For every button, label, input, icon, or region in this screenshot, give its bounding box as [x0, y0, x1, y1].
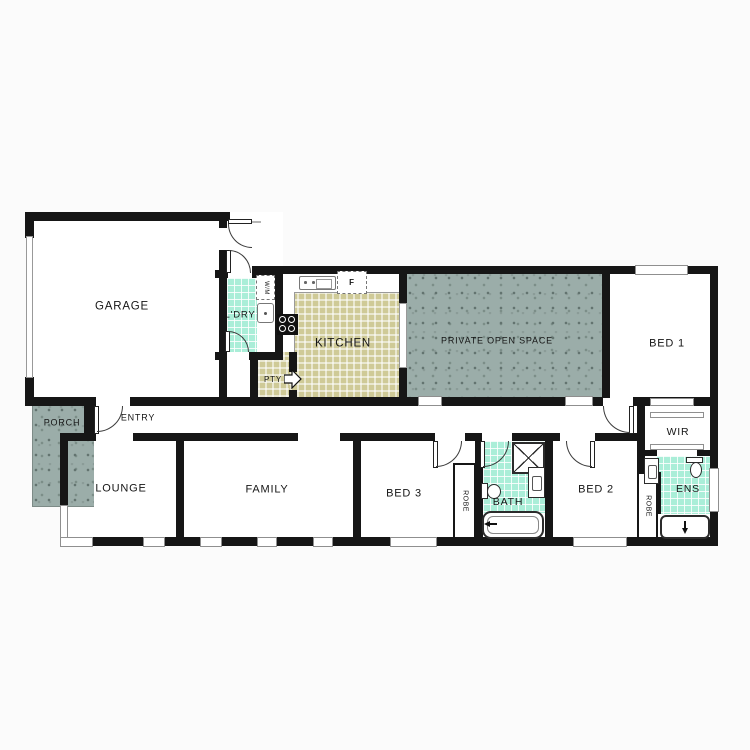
- wall: [442, 397, 565, 406]
- window: [257, 537, 277, 547]
- wall: [133, 433, 298, 441]
- wall: [275, 266, 283, 360]
- wall: [25, 397, 96, 406]
- pantry-label: PTY: [264, 376, 282, 384]
- bed3-robe-label: ROBE: [462, 490, 469, 512]
- vanity-basin: [528, 467, 545, 498]
- wardrobe-rail: [650, 444, 704, 450]
- wall: [68, 433, 96, 441]
- window: [313, 537, 333, 547]
- fridge-label: F: [349, 279, 355, 287]
- window: [143, 537, 165, 547]
- bed3-label: BED 3: [386, 489, 422, 500]
- wall: [545, 441, 553, 546]
- wall: [512, 433, 560, 441]
- wall: [645, 450, 657, 456]
- lounge-label: LOUNGE: [95, 484, 146, 495]
- wall: [289, 390, 297, 406]
- ens-label: ENS: [676, 484, 700, 495]
- laundry-tub: [257, 303, 274, 323]
- window: [390, 537, 437, 547]
- window: [573, 537, 627, 547]
- wall: [465, 433, 482, 441]
- window: [60, 505, 68, 538]
- glass-sliding-door: [399, 303, 407, 368]
- washing-machine-label: W/M: [263, 281, 269, 295]
- cooktop: [277, 314, 298, 335]
- window: [418, 396, 442, 406]
- wall: [25, 377, 34, 406]
- kitchen-sink: [299, 276, 336, 290]
- floor-plan: F W/M GARAGE PORCH ENTRY L'DRY PTY KITCH…: [0, 0, 750, 750]
- private-open-space-label: PRIVATE OPEN SPACE: [441, 337, 553, 346]
- wall: [219, 212, 227, 228]
- bathtub: [482, 511, 544, 539]
- wall: [252, 266, 635, 274]
- wall: [602, 274, 610, 398]
- wall: [25, 212, 34, 238]
- wir-label: WIR: [667, 427, 690, 438]
- toilet-bowl: [690, 462, 702, 478]
- wall: [176, 433, 184, 546]
- shower-head-arrow-icon: [682, 528, 688, 534]
- bath-mixer-arrow-icon: [484, 521, 490, 527]
- wall: [353, 433, 361, 546]
- wall: [595, 433, 637, 441]
- porch-label: PORCH: [44, 419, 81, 428]
- kitchen-label: KITCHEN: [315, 338, 371, 350]
- vanity-basin: [644, 458, 659, 484]
- wall: [399, 368, 407, 399]
- wall: [215, 352, 227, 360]
- wardrobe-rail: [650, 412, 704, 418]
- window: [635, 265, 688, 275]
- family-label: FAMILY: [245, 485, 288, 496]
- bed2-robe-label: ROBE: [645, 495, 652, 517]
- pantry-arrow-icon: [284, 369, 302, 389]
- bed1-label: BED 1: [649, 339, 685, 350]
- bath-mixer-icon: [489, 523, 497, 525]
- wall: [60, 433, 68, 506]
- window: [709, 468, 719, 512]
- bed2-label: BED 2: [578, 485, 614, 496]
- wall: [697, 450, 713, 456]
- wall: [399, 274, 407, 304]
- cavity-slider: [650, 398, 694, 406]
- garage-label: GARAGE: [95, 301, 149, 313]
- garage-door: [26, 236, 33, 378]
- window: [565, 396, 593, 406]
- laundry-label: L'DRY: [225, 310, 256, 320]
- entry-label: ENTRY: [121, 414, 155, 423]
- wall: [593, 397, 603, 406]
- bath-label: BATH: [493, 497, 523, 508]
- window: [200, 537, 222, 547]
- wall: [25, 212, 230, 221]
- window: [60, 537, 93, 547]
